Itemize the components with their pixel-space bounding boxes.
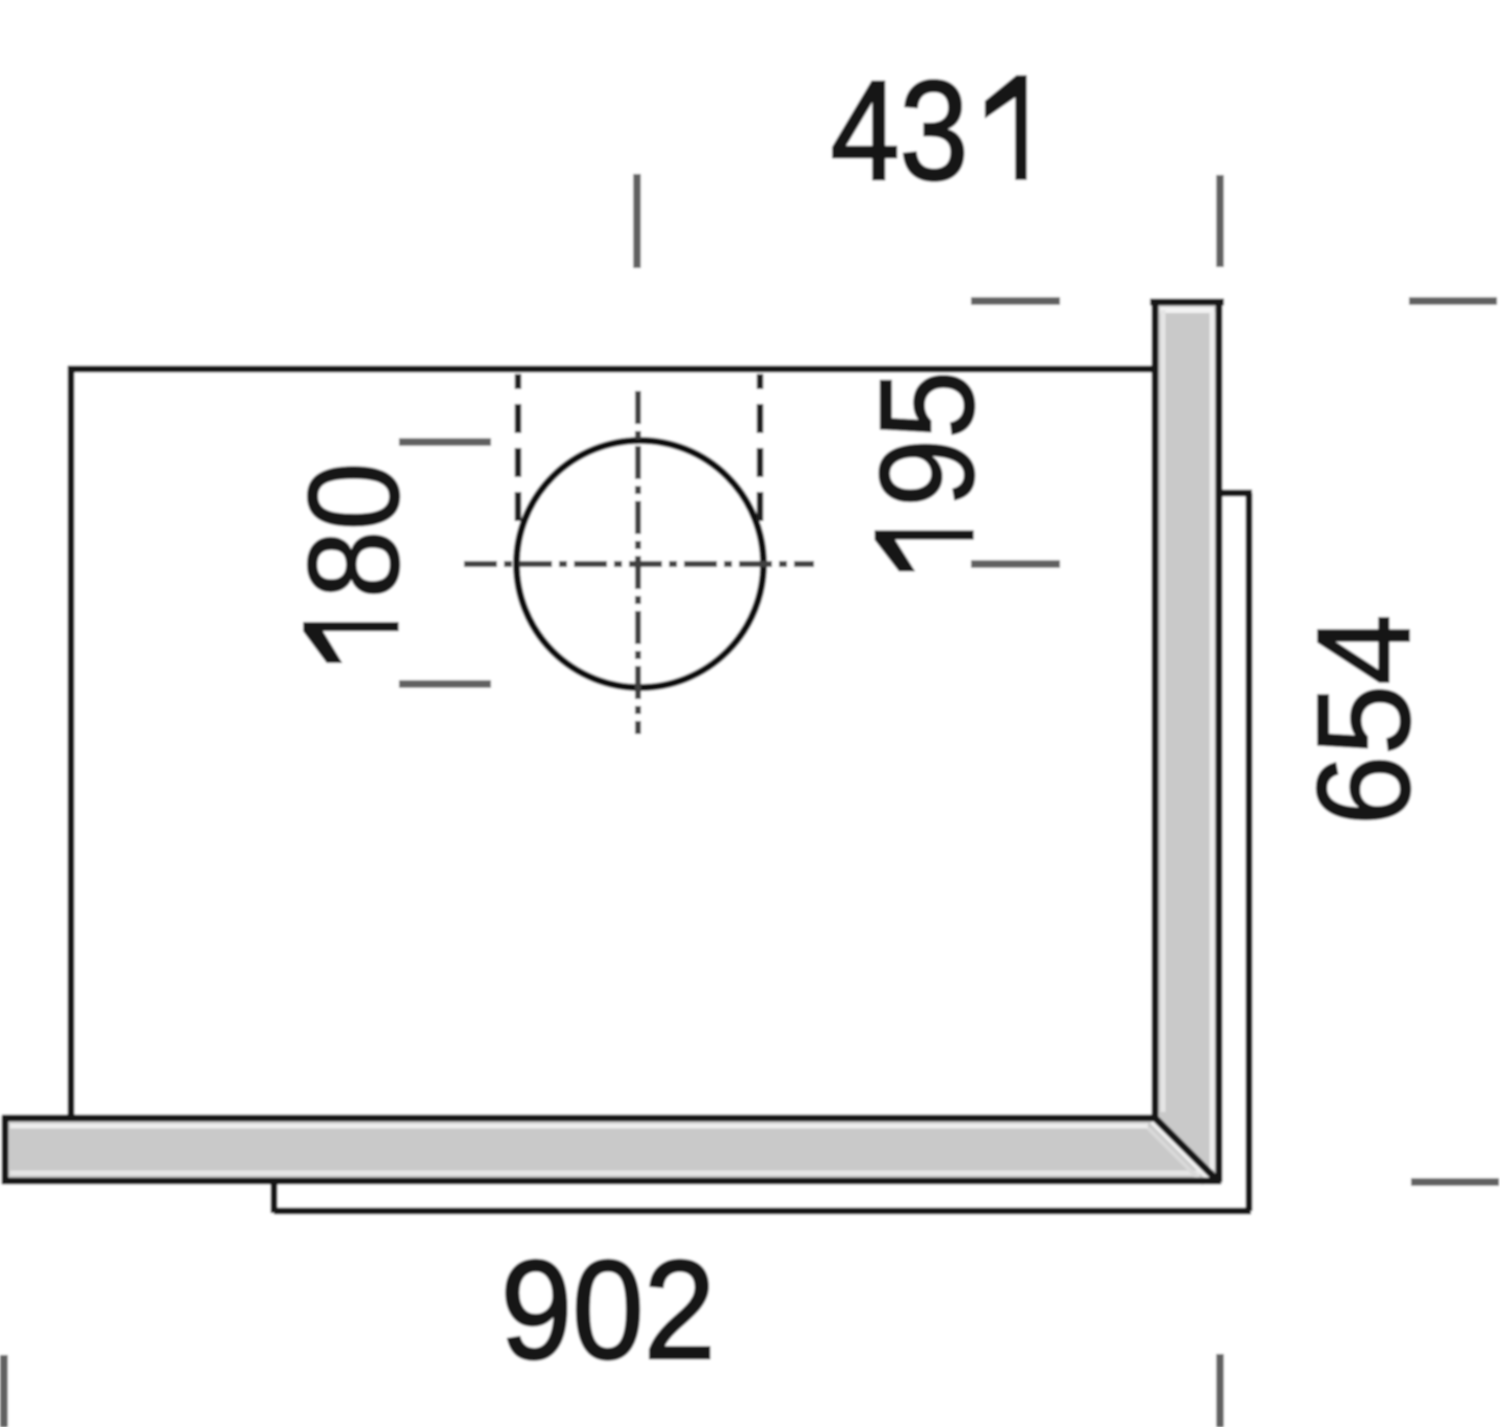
svg-text:80: 80 [281,462,426,598]
svg-text:43: 43 [831,53,969,210]
svg-text:654: 654 [1291,614,1438,825]
svg-text:902: 902 [501,1231,716,1388]
svg-text:95: 95 [853,371,1002,507]
